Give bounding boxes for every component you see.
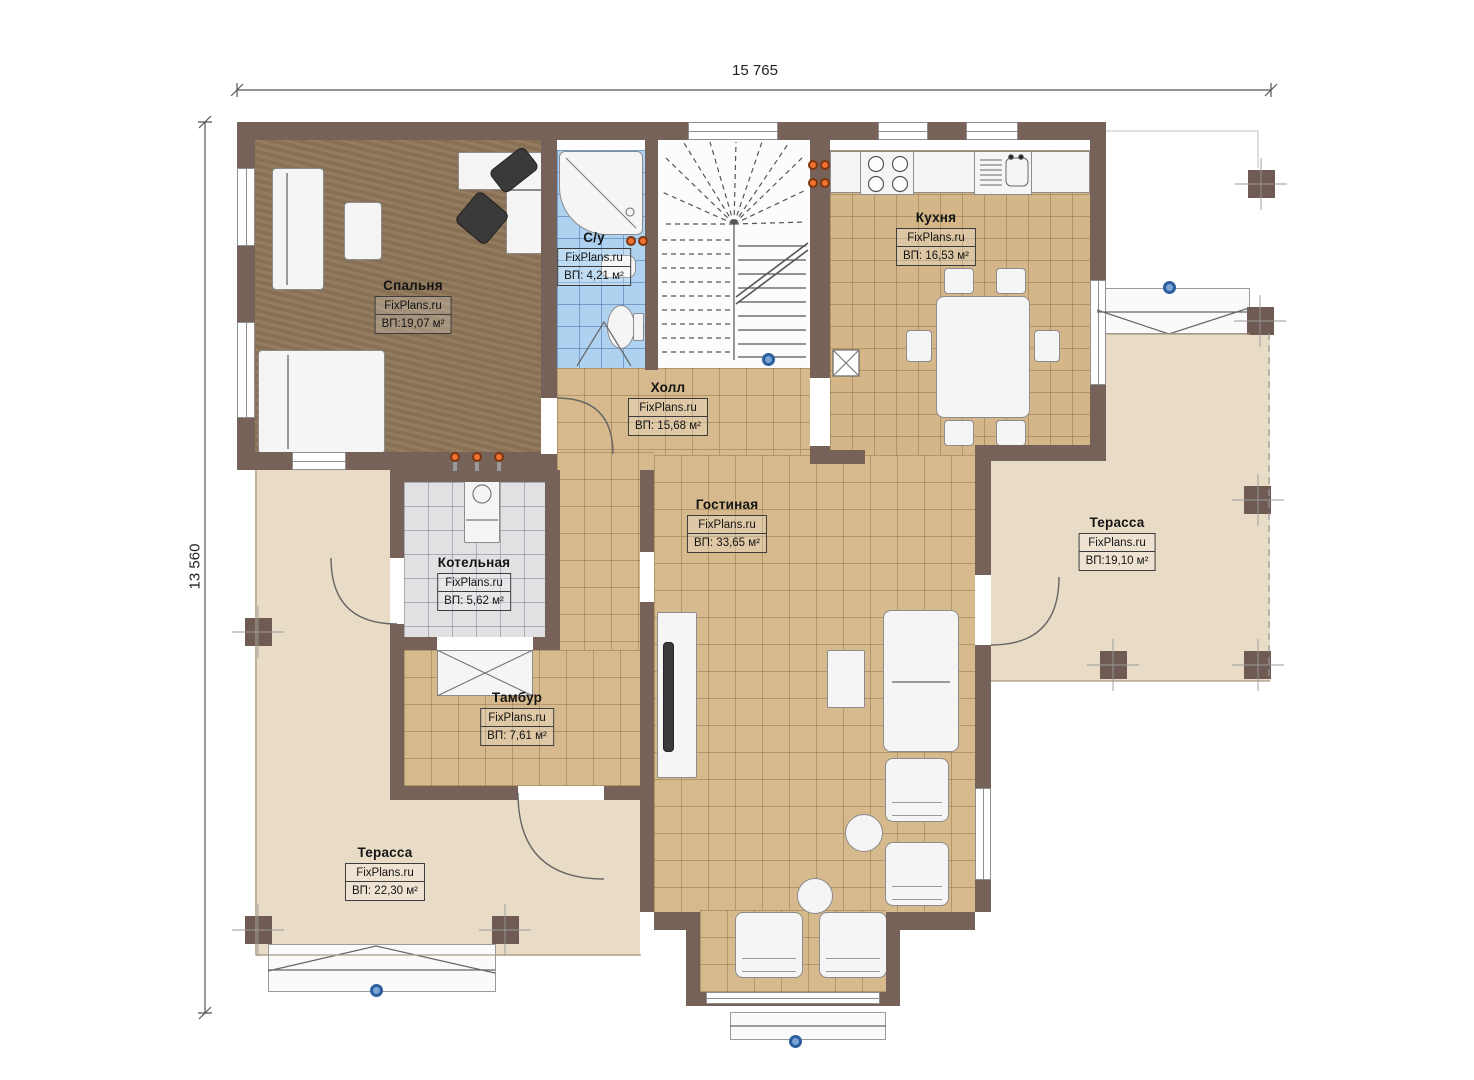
sofa (272, 168, 324, 290)
room-name: Терасса (1079, 515, 1156, 530)
brand-text: FixPlans.ru (346, 864, 424, 882)
room-area: ВП: 4,21 м² (558, 267, 630, 284)
wall (390, 470, 404, 800)
room-name: Тамбур (480, 690, 554, 705)
brand-text: FixPlans.ru (897, 229, 975, 247)
chair (906, 330, 932, 362)
toilet-tank (633, 313, 644, 341)
stove (860, 151, 914, 195)
column (245, 916, 272, 944)
room-area: ВП: 7,61 м² (481, 727, 553, 744)
wall (545, 482, 560, 650)
armchair (885, 842, 949, 906)
room-name: Холл (628, 380, 708, 395)
brand-text: FixPlans.ru (376, 297, 451, 315)
column (245, 618, 272, 646)
pipe-riser-icon (472, 452, 482, 471)
node-marker (370, 984, 383, 997)
dimension-left-label: 13 560 (187, 517, 204, 617)
room-area: ВП: 16,53 м² (897, 247, 975, 264)
brand-text: FixPlans.ru (558, 249, 630, 267)
room-label-terrace-right: Терасса FixPlans.ru ВП:19,10 м² (1079, 515, 1156, 571)
window (966, 122, 1018, 140)
armchair (735, 912, 803, 978)
door-opening (518, 786, 604, 800)
entry-steps (730, 1012, 886, 1040)
terrace-right-floor (1106, 333, 1270, 461)
room-name: С/у (557, 230, 631, 245)
column (492, 916, 519, 944)
room-area: ВП: 5,62 м² (438, 592, 510, 609)
window (975, 788, 991, 880)
node-marker (1163, 281, 1176, 294)
entry-steps (1097, 288, 1250, 334)
room-area: ВП: 33,65 м² (688, 534, 766, 551)
room-label-vestibule: Тамбур FixPlans.ru ВП: 7,61 м² (480, 690, 554, 746)
node-marker (789, 1035, 802, 1048)
brand-text: FixPlans.ru (629, 399, 707, 417)
room-name: Спальня (375, 278, 452, 293)
room-label-bathroom: С/у FixPlans.ru ВП: 4,21 м² (557, 230, 631, 286)
entry-steps (268, 944, 496, 992)
room-label-terrace-left: Терасса FixPlans.ru ВП: 22,30 м² (345, 845, 425, 901)
armchair (819, 912, 887, 978)
door-opening (390, 558, 404, 624)
terrace-right-floor (991, 461, 1270, 681)
radiator-icon (808, 160, 830, 170)
kitchen-sink (974, 151, 1032, 195)
pipe-riser-icon (494, 452, 504, 471)
wall (645, 140, 658, 370)
column (1100, 651, 1127, 679)
window (237, 168, 255, 246)
column (1244, 651, 1271, 679)
brand-text: FixPlans.ru (688, 516, 766, 534)
stairwell-floor (658, 140, 810, 370)
room-area: ВП: 15,68 м² (629, 417, 707, 434)
round-table (845, 814, 883, 852)
round-table (797, 878, 833, 914)
door-opening (541, 398, 557, 454)
tv (663, 642, 674, 752)
dining-table (936, 296, 1030, 418)
living-sofa (883, 610, 959, 752)
armchair (885, 758, 949, 822)
window (688, 122, 778, 140)
brand-text: FixPlans.ru (1080, 534, 1155, 552)
room-label-kitchen: Кухня FixPlans.ru ВП: 16,53 м² (896, 210, 976, 266)
chair (1034, 330, 1060, 362)
door-opening (810, 378, 830, 446)
room-label-bedroom: Спальня FixPlans.ru ВП:19,07 м² (375, 278, 452, 334)
desk (506, 190, 546, 254)
window (1090, 280, 1106, 385)
brand-text: FixPlans.ru (481, 709, 553, 727)
window (706, 992, 880, 1004)
column (1244, 486, 1271, 514)
room-area: ВП:19,10 м² (1080, 552, 1155, 569)
room-label-living: Гостиная FixPlans.ru ВП: 33,65 м² (687, 497, 767, 553)
chair (944, 420, 974, 446)
floor-plan-canvas: 15 765 13 560 (0, 0, 1474, 1080)
window (237, 322, 255, 418)
console-table (827, 650, 865, 708)
wall (810, 450, 865, 464)
window (878, 122, 928, 140)
dimension-top-label: 15 765 (700, 62, 810, 79)
wall (975, 445, 1106, 461)
chair (996, 420, 1026, 446)
chair (944, 268, 974, 294)
room-label-hall: Холл FixPlans.ru ВП: 15,68 м² (628, 380, 708, 436)
room-name: Котельная (437, 555, 511, 570)
radiator-icon (808, 178, 830, 188)
door-opening (975, 575, 991, 645)
room-name: Гостиная (687, 497, 767, 512)
door-opening (437, 637, 533, 650)
column (1247, 307, 1274, 335)
room-label-boiler: Котельная FixPlans.ru ВП: 5,62 м² (437, 555, 511, 611)
pipe-riser-icon (450, 452, 460, 471)
room-area: ВП: 22,30 м² (346, 882, 424, 899)
node-marker (762, 353, 775, 366)
wall (390, 470, 560, 482)
side-table (344, 202, 382, 260)
brand-text: FixPlans.ru (438, 574, 510, 592)
toilet (607, 305, 635, 349)
door-opening (640, 552, 654, 602)
wall (640, 470, 654, 912)
bed (258, 350, 385, 454)
column (1248, 170, 1275, 198)
wall (237, 452, 557, 470)
room-area: ВП:19,07 м² (376, 315, 451, 332)
window (292, 452, 346, 470)
room-name: Терасса (345, 845, 425, 860)
room-name: Кухня (896, 210, 976, 225)
chair (996, 268, 1026, 294)
boiler-unit (464, 477, 500, 543)
